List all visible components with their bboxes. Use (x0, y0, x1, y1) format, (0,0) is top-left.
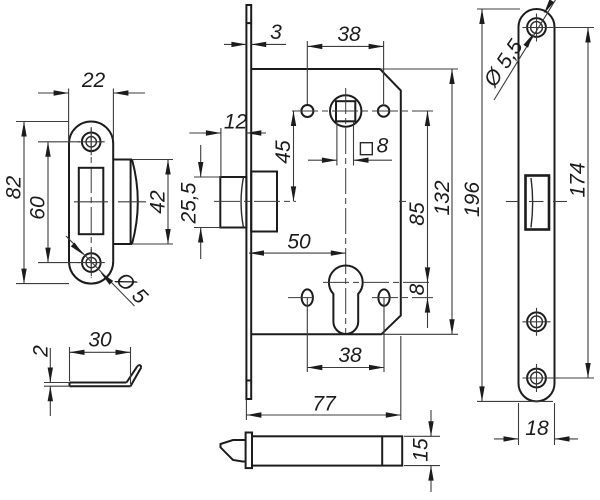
svg-text:60: 60 (27, 196, 50, 220)
svg-text:38: 38 (338, 344, 362, 367)
svg-text:12: 12 (224, 111, 248, 134)
svg-text:2: 2 (29, 345, 52, 358)
svg-text:30: 30 (88, 329, 112, 352)
svg-text:82: 82 (3, 176, 26, 200)
svg-text:85: 85 (406, 202, 429, 226)
svg-text:22: 22 (81, 69, 106, 92)
svg-text:Ø 5,5: Ø 5,5 (479, 35, 528, 92)
svg-text:132: 132 (431, 180, 454, 215)
svg-text:50: 50 (287, 231, 311, 254)
svg-text:45: 45 (272, 140, 295, 164)
svg-text:196: 196 (461, 182, 484, 217)
svg-text:8: 8 (406, 283, 429, 295)
svg-text:3: 3 (270, 21, 282, 44)
svg-text:174: 174 (567, 162, 590, 197)
svg-text:77: 77 (312, 393, 337, 416)
svg-text:25,5: 25,5 (178, 182, 201, 224)
svg-text:8: 8 (377, 135, 389, 158)
svg-text:42: 42 (147, 190, 170, 214)
svg-text:18: 18 (525, 417, 549, 440)
svg-text:Ø 5: Ø 5 (111, 268, 152, 309)
svg-text:38: 38 (337, 23, 361, 46)
svg-text:15: 15 (410, 438, 433, 462)
